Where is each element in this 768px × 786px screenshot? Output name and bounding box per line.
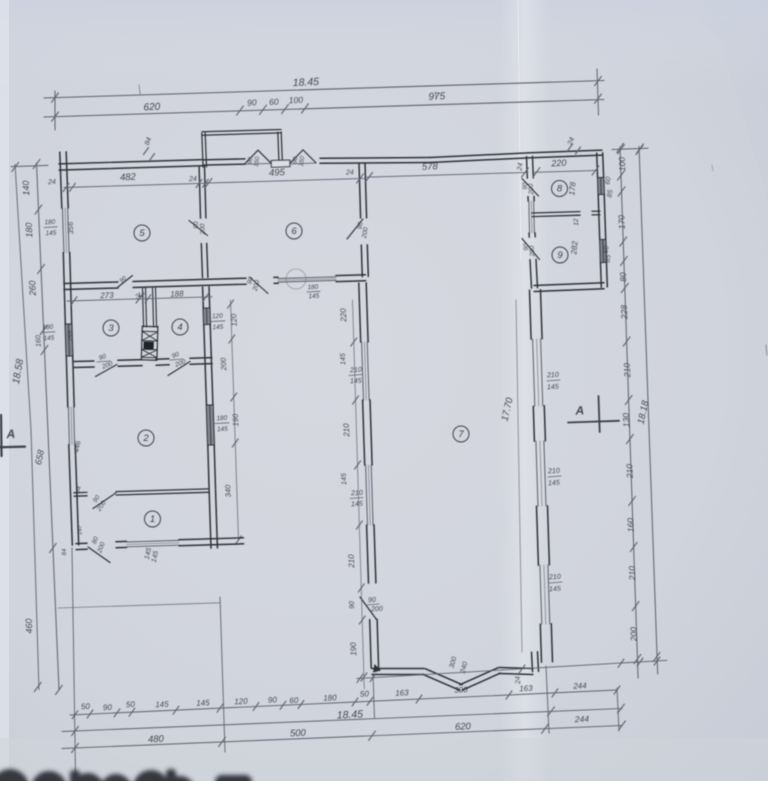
svg-text:60: 60 [602,245,610,254]
svg-text:180: 180 [42,324,54,332]
svg-text:180: 180 [307,284,319,292]
svg-text:3: 3 [108,323,114,334]
svg-text:100: 100 [617,157,627,172]
svg-text:145: 145 [340,353,347,365]
svg-text:210: 210 [547,468,560,476]
svg-text:244: 244 [572,681,587,691]
svg-text:4: 4 [177,322,182,333]
svg-text:188: 188 [170,289,184,299]
svg-text:5: 5 [139,228,145,239]
svg-text:480: 480 [148,734,165,746]
svg-text:50: 50 [81,702,91,711]
svg-text:A: A [574,403,584,417]
svg-text:12: 12 [137,292,145,299]
svg-text:170: 170 [616,215,626,230]
svg-text:2: 2 [142,433,149,444]
svg-text:145: 145 [43,335,55,343]
svg-text:210: 210 [624,464,635,480]
svg-text:90: 90 [268,695,278,704]
svg-text:145: 145 [548,480,560,488]
svg-text:260: 260 [27,280,38,296]
svg-text:460: 460 [24,618,35,633]
svg-text:145: 145 [217,426,229,434]
svg-text:180: 180 [216,415,228,423]
svg-text:500: 500 [290,728,307,740]
svg-text:85: 85 [606,189,614,198]
svg-text:163: 163 [395,688,409,698]
svg-text:228: 228 [619,305,630,321]
svg-text:50: 50 [126,700,136,709]
svg-text:7: 7 [458,429,464,440]
svg-text:90: 90 [103,703,113,712]
svg-text:180: 180 [44,219,56,227]
svg-text:60: 60 [604,176,612,185]
svg-text:50: 50 [360,689,370,698]
svg-text:8: 8 [557,184,563,195]
svg-text:145: 145 [341,473,348,485]
svg-text:210: 210 [546,372,559,380]
svg-text:210: 210 [548,574,561,582]
svg-text:340: 340 [223,484,232,498]
svg-text:140: 140 [21,180,32,195]
svg-text:282: 282 [569,240,579,256]
svg-text:160: 160 [625,518,635,533]
svg-text:200: 200 [529,245,536,257]
svg-text:18.45: 18.45 [292,76,319,89]
svg-text:90: 90 [349,601,356,609]
svg-text:578: 578 [422,161,439,173]
svg-text:1: 1 [150,514,155,525]
svg-text:120: 120 [212,313,224,321]
svg-text:495: 495 [269,167,286,179]
svg-text:145: 145 [549,586,561,594]
svg-text:200: 200 [219,357,228,372]
svg-text:160: 160 [35,335,42,347]
svg-text:210: 210 [627,566,638,582]
svg-text:24: 24 [345,169,354,176]
svg-text:200: 200 [528,183,535,195]
svg-text:120: 120 [229,313,238,327]
svg-text:12: 12 [573,218,580,226]
svg-text:210: 210 [349,367,362,375]
svg-text:220: 220 [339,308,349,323]
svg-text:9: 9 [557,250,563,261]
svg-text:145: 145 [350,378,362,386]
svg-text:24: 24 [515,676,522,685]
svg-text:620: 620 [143,102,161,114]
svg-text:120: 120 [234,697,248,707]
svg-text:620: 620 [455,721,472,733]
svg-text:145: 145 [351,501,363,509]
svg-text:145: 145 [155,700,169,710]
svg-text:210: 210 [622,363,633,379]
svg-text:147: 147 [77,524,83,535]
svg-text:482: 482 [120,172,137,184]
svg-text:90: 90 [368,597,376,604]
svg-text:180: 180 [24,222,35,237]
svg-text:200: 200 [628,627,639,643]
svg-text:100: 100 [289,95,304,106]
svg-text:220: 220 [550,158,566,169]
svg-text:180: 180 [323,693,337,703]
svg-text:24: 24 [188,176,197,183]
svg-text:145: 145 [308,293,320,301]
svg-text:145: 145 [196,698,210,708]
svg-text:6: 6 [291,226,297,237]
svg-text:145: 145 [45,230,57,238]
svg-text:210: 210 [342,423,352,438]
svg-text:80: 80 [618,272,628,282]
svg-text:190: 190 [349,642,358,656]
svg-text:18.45: 18.45 [336,708,363,721]
svg-text:975: 975 [428,91,446,103]
svg-text:A: A [5,427,15,441]
svg-text:145: 145 [547,384,559,392]
svg-text:273: 273 [99,291,114,301]
svg-text:85: 85 [604,254,612,263]
svg-text:163: 163 [519,684,533,694]
svg-text:60: 60 [289,696,299,705]
svg-text:200: 200 [370,606,383,614]
svg-text:24: 24 [47,179,56,186]
svg-text:200: 200 [199,223,206,235]
svg-text:300: 300 [454,685,468,695]
svg-text:210: 210 [347,554,357,569]
svg-text:178: 178 [567,181,577,196]
svg-text:190: 190 [231,413,240,427]
svg-text:244: 244 [574,714,590,725]
svg-text:356: 356 [66,221,75,235]
svg-text:60: 60 [269,97,279,107]
svg-text:84: 84 [62,548,68,556]
svg-text:255: 255 [67,330,74,342]
svg-text:210: 210 [350,490,363,498]
svg-text:90: 90 [247,97,257,107]
svg-text:130: 130 [621,413,631,428]
svg-text:145: 145 [212,324,224,332]
